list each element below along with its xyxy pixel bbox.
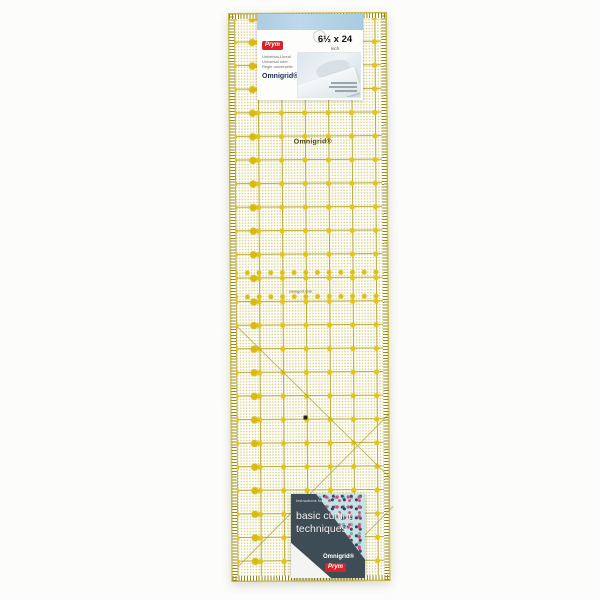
label-blue-band (257, 14, 363, 30)
prym-logo: Prym (262, 41, 283, 50)
caption-line (331, 82, 357, 84)
title-line-1: basic cutting (296, 510, 354, 523)
instructions-small-text: Instructions for (296, 499, 323, 503)
label-product-photo (297, 52, 361, 98)
ruler-website-print: omnigrid.com (289, 289, 312, 293)
center-marker (303, 416, 307, 420)
size-unit: inch (309, 46, 361, 51)
ruler-brand-print: Omnigrid® (294, 138, 332, 145)
bottom-instructions-label: Instructions for basic cutting technique… (291, 494, 365, 578)
caption-line (335, 90, 357, 92)
size-callout: 6½ x 24 inch (309, 34, 361, 51)
product-photo: Omnigrid® omnigrid.com Prym Universal-Li… (0, 0, 600, 600)
prym-logo: Prym (325, 563, 346, 572)
size-text: 6½ x 24 (309, 34, 361, 45)
omnigrid-brand: Omnigrid® (323, 554, 354, 560)
half-inch-dot-row (236, 265, 383, 280)
instructions-title: basic cutting techniques (296, 510, 354, 535)
caption-line (329, 86, 357, 88)
title-line-2: techniques (296, 523, 354, 536)
top-packaging-label: Prym Universal-Lineal Universal ruler Rè… (257, 14, 363, 100)
